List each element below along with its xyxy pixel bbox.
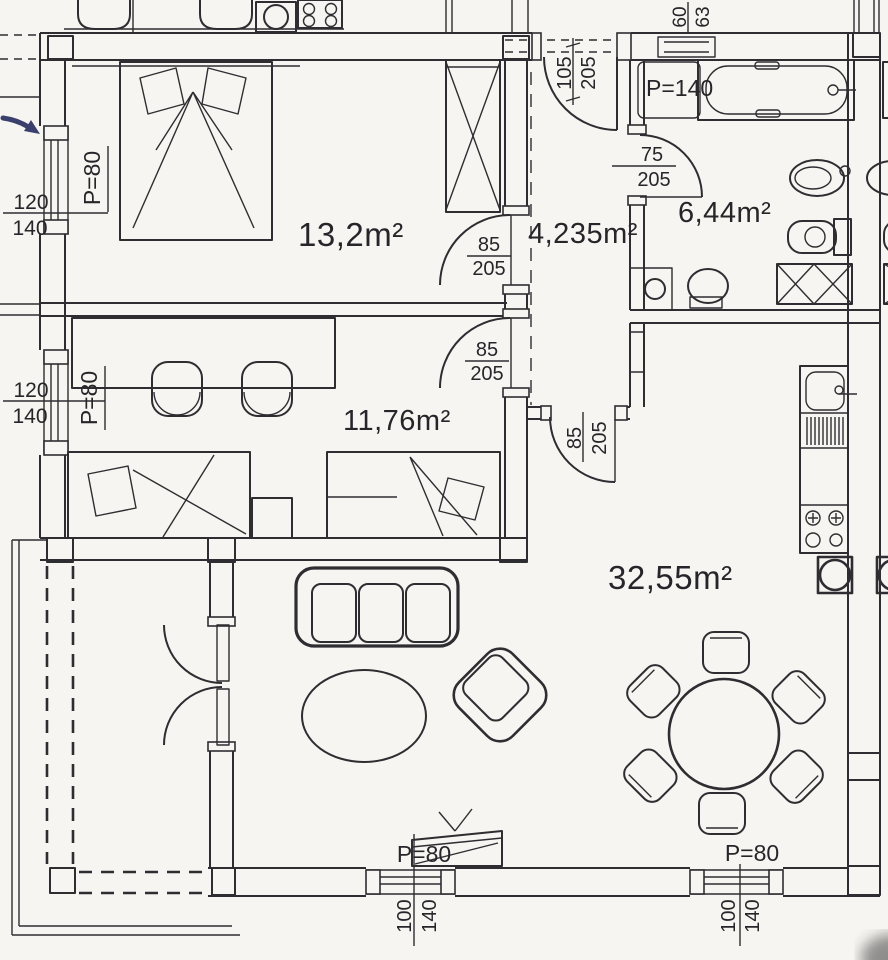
wardrobe bbox=[446, 60, 500, 212]
duct-shaft bbox=[630, 332, 644, 372]
neighbor-washer bbox=[884, 264, 888, 304]
label-bathroom-area: 6,44m² bbox=[678, 197, 771, 229]
wall-pillar bbox=[47, 538, 73, 562]
dim-window-left-lower-h: 140 bbox=[12, 405, 47, 428]
drainboard bbox=[807, 417, 843, 445]
adjacent-unit-right bbox=[867, 62, 888, 593]
scan-shadow bbox=[861, 934, 888, 960]
pillow bbox=[140, 68, 184, 114]
dim-entry-door-w: 105 bbox=[554, 56, 576, 89]
wall-pillar bbox=[48, 36, 73, 59]
boiler bbox=[818, 557, 852, 593]
dim-bedroom-main-door-h: 205 bbox=[472, 258, 505, 280]
wall-pillar bbox=[212, 868, 235, 895]
neighbor-chair bbox=[78, 0, 130, 29]
window-bottom-right bbox=[690, 870, 783, 894]
dim-living-door-w: 85 bbox=[564, 427, 586, 449]
balcony bbox=[12, 540, 240, 935]
washing-machine bbox=[777, 264, 852, 304]
dim-bedroom-main-door-w: 85 bbox=[478, 234, 500, 256]
wall-pillar bbox=[500, 538, 527, 562]
dim-bathroom-door-h: 205 bbox=[637, 169, 670, 191]
dining-table bbox=[669, 679, 779, 789]
bedroom-main: 13,2m² bbox=[72, 60, 500, 253]
neighbor-chair bbox=[200, 0, 252, 29]
dim-window-left-upper-w: 120 bbox=[13, 191, 48, 214]
parapet-bath-window: P=140 bbox=[646, 75, 713, 101]
living-room: 32,55m² bbox=[296, 559, 829, 866]
wall-pillar bbox=[208, 538, 235, 562]
neighbor-sink bbox=[256, 2, 296, 32]
dim-window-bottom-left-h: 140 bbox=[419, 899, 441, 932]
dim-bedroom-small-door-w: 85 bbox=[476, 339, 498, 361]
walls bbox=[40, 33, 880, 896]
wall-pillar bbox=[50, 868, 75, 893]
dim-living-door-h: 205 bbox=[589, 421, 611, 454]
toilet bbox=[788, 219, 851, 255]
pillow bbox=[88, 466, 136, 516]
stove bbox=[806, 511, 843, 547]
bathtub bbox=[698, 60, 856, 120]
window-bottom-left bbox=[366, 870, 455, 894]
neighbor-hob bbox=[298, 0, 342, 28]
bedroom-small: 11,76m² bbox=[68, 318, 500, 538]
blanket-fold bbox=[133, 455, 246, 537]
double-bed bbox=[120, 62, 272, 240]
coffee-table bbox=[302, 670, 426, 762]
balcony-french-doors bbox=[164, 625, 229, 745]
dining-chair bbox=[703, 632, 749, 673]
dim-window-bottom-right-h: 140 bbox=[742, 899, 764, 932]
dim-bathroom-door-w: 75 bbox=[641, 144, 663, 166]
dim-bath-window-h: 63 bbox=[693, 6, 714, 27]
floor-drain bbox=[645, 279, 665, 299]
dim-window-bottom-left-w: 100 bbox=[394, 899, 416, 932]
dim-bath-window-w: 60 bbox=[670, 6, 691, 27]
parapet-bottom-right: P=80 bbox=[725, 840, 779, 866]
single-bed-right bbox=[327, 452, 500, 538]
label-bedroom-small-area: 11,76m² bbox=[343, 405, 451, 437]
dim-window-left-upper-h: 140 bbox=[12, 217, 47, 240]
label-hallway-area: 4,235m² bbox=[528, 218, 638, 250]
neighbor-washbasin bbox=[867, 161, 888, 195]
single-bed-left bbox=[68, 452, 250, 538]
armchair bbox=[446, 641, 553, 748]
parapet-left-lower: P=80 bbox=[76, 371, 102, 425]
stool bbox=[688, 269, 728, 308]
washbasin bbox=[790, 160, 850, 196]
dining-chair bbox=[699, 793, 745, 834]
kitchen-sink bbox=[806, 372, 857, 445]
pillow bbox=[202, 68, 246, 114]
entry-door-post bbox=[617, 33, 631, 60]
label-bedroom-main-area: 13,2m² bbox=[298, 216, 404, 253]
label-living-room-area: 32,55m² bbox=[608, 559, 733, 596]
wall-pillar bbox=[853, 33, 880, 57]
floor-plan-scan: 13,2m² 11,76m² bbox=[0, 0, 888, 960]
bath-vent-window bbox=[658, 37, 715, 57]
neighbor-bathtub bbox=[883, 62, 888, 118]
dim-entry-door-h: 205 bbox=[578, 56, 600, 89]
parapet-bottom-left: P=80 bbox=[397, 841, 451, 867]
nightstand bbox=[252, 498, 292, 538]
wall-pillar bbox=[848, 866, 880, 895]
desk bbox=[72, 318, 335, 388]
annotation-arrow bbox=[3, 118, 30, 128]
dimensions: 120 140 P=80 120 140 P=80 105 205 60 63 … bbox=[0, 2, 779, 946]
neighbor-toilet bbox=[884, 221, 888, 253]
window-left-upper bbox=[44, 126, 68, 234]
sofa bbox=[296, 568, 458, 646]
wall-pillar bbox=[848, 753, 880, 780]
adjacent-unit-top bbox=[64, 0, 879, 33]
floor-plan-canvas: 13,2m² 11,76m² bbox=[0, 0, 888, 960]
dim-bedroom-small-door-h: 205 bbox=[470, 363, 503, 385]
parapet-left-upper: P=80 bbox=[79, 151, 105, 205]
dim-window-bottom-right-w: 100 bbox=[718, 899, 740, 932]
dim-window-left-lower-w: 120 bbox=[13, 379, 48, 402]
window-left-lower bbox=[44, 350, 68, 455]
dining-chair bbox=[623, 661, 685, 723]
